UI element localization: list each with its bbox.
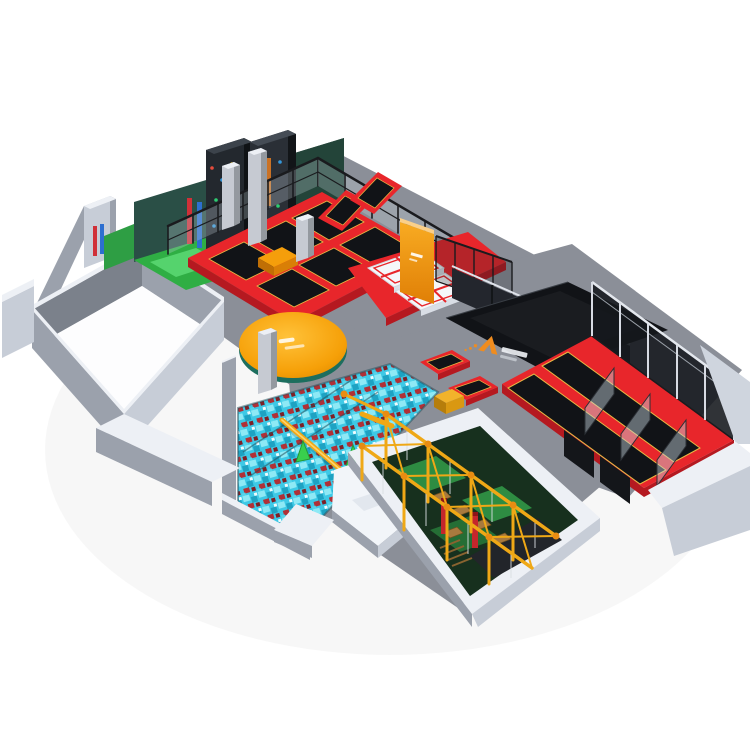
trampoline-park-render: 3D isometric render of an indoor trampol…	[0, 0, 750, 750]
orange-wall	[400, 218, 434, 304]
isometric-scene: 3D isometric render of an indoor trampol…	[0, 0, 750, 750]
stage-front-column	[258, 328, 277, 394]
